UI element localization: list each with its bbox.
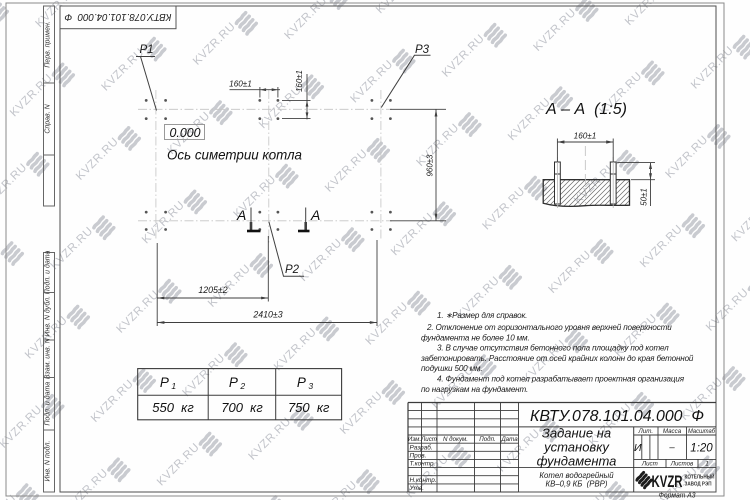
svg-text:Подп.: Подп. (479, 436, 495, 443)
svg-text:Инв. N подл.: Инв. N подл. (44, 440, 52, 481)
svg-text:160±1: 160±1 (229, 80, 252, 89)
svg-text:по нагрузкам на фундамент.: по нагрузкам на фундамент. (421, 385, 528, 394)
svg-text:КВТУ.078.101.04.000 Ф: КВТУ.078.101.04.000 Ф (530, 408, 704, 425)
svg-text:КОТЕЛЬНЫЙ: КОТЕЛЬНЫЙ (685, 473, 715, 481)
svg-text:1205±2: 1205±2 (198, 285, 227, 295)
svg-text:Р2: Р2 (285, 264, 300, 276)
svg-text:Лист: Лист (420, 436, 437, 443)
svg-text:А: А (310, 207, 320, 223)
svg-text:160±1: 160±1 (574, 132, 597, 141)
svg-text:Справ. N: Справ. N (45, 103, 52, 133)
svg-text:фундамента не более 10 мм.: фундамента не более 10 мм. (421, 333, 530, 342)
svg-text:Н.контр.: Н.контр. (410, 477, 437, 484)
svg-text:Инв. N дубл.: Инв. N дубл. (44, 296, 52, 337)
svg-text:KVZR: KVZR (652, 473, 683, 491)
svg-text:Р1: Р1 (140, 44, 154, 56)
svg-text:Разраб.: Разраб. (410, 443, 433, 451)
svg-text:установку: установку (543, 440, 610, 455)
svg-text:960±3: 960±3 (426, 154, 435, 176)
svg-text:0.000: 0.000 (170, 125, 202, 140)
svg-text:подушки 500 мм.: подушки 500 мм. (421, 364, 483, 373)
svg-text:И: И (634, 442, 642, 454)
svg-text:ЗАВОД РЭП: ЗАВОД РЭП (685, 482, 712, 488)
svg-text:Листов: Листов (670, 461, 694, 468)
svg-text:А – А (1:5): А – А (1:5) (545, 101, 627, 118)
svg-text:А: А (236, 207, 246, 223)
svg-text:Задание на: Задание на (542, 426, 611, 441)
svg-text:1:20: 1:20 (690, 443, 713, 455)
svg-text:Изм.: Изм. (408, 436, 421, 443)
svg-text:Ось симетрии котла: Ось симетрии котла (167, 147, 302, 163)
svg-text:Взам. инв. N: Взам. инв. N (45, 337, 52, 379)
svg-text:Формат А3: Формат А3 (659, 491, 696, 500)
svg-text:1. ∗Размер для справок.: 1. ∗Размер для справок. (437, 311, 527, 320)
svg-text:Масштаб: Масштаб (688, 428, 715, 435)
svg-text:Т.контр.: Т.контр. (410, 461, 436, 468)
svg-text:Дата: Дата (500, 436, 518, 443)
svg-text:Подп. и дата: Подп. и дата (44, 382, 52, 426)
svg-text:забетонировать. Расстояние от: забетонировать. Расстояние от осей крайн… (420, 354, 694, 363)
svg-text:2. Отклонение от горизонтально: 2. Отклонение от горизонтального уровня … (426, 323, 672, 332)
svg-text:Р3: Р3 (415, 44, 430, 56)
svg-text:Утв.: Утв. (409, 485, 425, 492)
svg-text:Лист: Лист (641, 461, 658, 468)
svg-text:3. В случае отсутствия бетонно: 3. В случае отсутствия бетонного пола пл… (437, 344, 669, 353)
svg-text:КВТУ.078.101.04.000 Ф: КВТУ.078.101.04.000 Ф (65, 11, 172, 22)
svg-text:Лит.: Лит. (638, 428, 654, 435)
svg-text:Перв. примен.: Перв. примен. (45, 21, 52, 68)
svg-text:Пров.: Пров. (410, 452, 427, 459)
svg-text:2410±3: 2410±3 (252, 310, 282, 320)
svg-text:фундамента: фундамента (537, 454, 617, 469)
svg-text:1: 1 (705, 461, 708, 468)
svg-text:N докум.: N докум. (443, 436, 468, 443)
svg-text:Подп. и дата: Подп. и дата (44, 250, 52, 294)
svg-text:700 кг: 700 кг (221, 400, 263, 415)
svg-text:550 кг: 550 кг (152, 400, 194, 415)
svg-text:Масса: Масса (663, 428, 682, 435)
svg-text:160±1: 160±1 (295, 70, 304, 92)
svg-text:КВ–0,9 КБ (РВР): КВ–0,9 КБ (РВР) (546, 480, 608, 489)
svg-text:50±1: 50±1 (640, 188, 649, 206)
svg-text:750 кг: 750 кг (288, 400, 330, 415)
svg-text:–: – (668, 442, 675, 453)
svg-text:4. Фундамент под котел разраба: 4. Фундамент под котел разрабатывает про… (437, 375, 685, 384)
